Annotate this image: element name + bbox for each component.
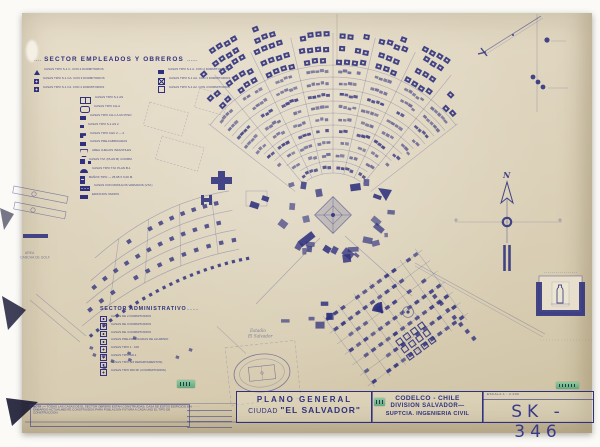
legend-row: CASAS TIPO S-1 A2. CON 4 DORMITORIOS — [158, 86, 291, 95]
legend-row-label: CASAS TIPO S-1 C. CON 2 DORMITORIOS — [44, 68, 104, 71]
legend-row: CASAS TIPO CH-A — [80, 105, 211, 114]
legend-row-label: CASAS TIPO S-1 CA. CON 3 DORMITORIOS — [43, 77, 105, 80]
legend-row: CASAS PRE-FABRICADAS — [80, 140, 211, 149]
legend-row: CASAS TIPO S-1 C. CON 2 DORMITORIOS — [34, 68, 166, 77]
wide-solid-icon — [80, 195, 88, 199]
scanned-drawing-page: AREACANCHA DE GOLFEstadioEl SalvadorN ..… — [0, 0, 600, 447]
legend-row-label: CASAS TIPO S-1 C2. CON 4 DORMITORIOS — [43, 86, 104, 89]
legend-row: CASAS TIPO 300 M² (4 DORMITORIOS) — [100, 369, 230, 377]
legend-administrativo: SECTOR ADMINISTRATIVO........ CASAS DE 2… — [100, 306, 230, 377]
legend-row-label: CASAS TIPO AD-1 — [111, 354, 136, 357]
legend-row-label: CASAS CON MODULOS VARIADOS (V.M.) — [94, 184, 153, 187]
legend-row: BAÑOS TIPO — 25,68 X 6,00 M. — [80, 175, 211, 184]
legend-row-label: CASAS TIPO CHC 2 — 2 — [90, 132, 124, 135]
nota-line-3: CONSTRUCCION. — [33, 412, 110, 415]
estadio-label: Estadio — [249, 328, 266, 333]
solid-square-icon — [80, 142, 86, 146]
square-plus-icon — [80, 159, 85, 164]
legend-row-label: CASAS TIPO S-1 AA. CON 3 DORMITORIOS — [169, 77, 230, 80]
small-solid-icon — [80, 125, 84, 128]
legend-row-label: CASAS TIPO CH-A — [94, 105, 120, 108]
legend-row-label: CASAS PRE-FABRICADAS — [90, 140, 127, 143]
north-arrow: N — [454, 170, 562, 271]
division-name: DIVISION SALVADOR— — [372, 403, 483, 409]
square-dot-icon — [34, 79, 39, 84]
green-sticker — [556, 382, 579, 389]
legend-row: CASAS TIPO CHC 2 — 2 — [80, 131, 211, 140]
admin-square-icon — [100, 346, 107, 353]
legend-row: CASAS TIPO S-1 CA. CON 3 DORMITORIOS — [34, 77, 166, 86]
legend-row-label: CASAS TIPO 1 : 100 — [111, 346, 139, 349]
central-plaza — [315, 197, 352, 234]
legend-row-label: CASAS DE 2 DORMITORIOS — [111, 315, 151, 318]
legend-row: CASAS TIPO 1 : 100 — [100, 346, 230, 354]
revision-row: ······ · ···· — [187, 406, 210, 408]
hospital-building — [201, 171, 269, 209]
legend-row: CASAS TIPO T.M. PLAN B-1 — [80, 166, 211, 175]
legend-row: CASAS CON MODULOS VARIADOS (V.M.) — [80, 184, 211, 193]
legend-row-label: CASAS TIPO S-1 AS — [95, 96, 123, 99]
legend-row: CASAS TIPO S-1 C2. CON 4 DORMITORIOS — [34, 86, 166, 95]
title-block-company: CODELCO - CHILE DIVISION SALVADOR— SUPTC… — [371, 391, 484, 423]
nota-block: NOTA :— TODAS LAS CASAS DE EL SECTOR OBR… — [30, 404, 190, 427]
scale-strip: ESCALA 1 : 2.000 — [483, 392, 593, 400]
triangle-icon — [34, 70, 40, 75]
legend-administrativo-title: SECTOR ADMINISTRATIVO........ — [100, 306, 230, 312]
admin-square-icon — [100, 316, 107, 323]
legend-row-label: CASAS TIPO S-1 A. CON 2 DORMITORIOS — [168, 68, 227, 71]
legend-empleados-obreros: .... SECTOR EMPLEADOS Y OBREROS ...... C… — [34, 56, 198, 63]
revision-row: ······ · ···· — [187, 411, 210, 413]
legend-row: CASAS TIPO S-1 AS — [80, 96, 211, 105]
plan-title: PLANO GENERAL — [237, 395, 372, 404]
drawing-number: SK - 346 — [483, 402, 593, 442]
solid-square-icon — [80, 116, 86, 120]
department-name: SUPTCIA. INGENIERIA CIVIL — [372, 411, 483, 417]
legend-row: CASAS DE 4 DORMITORIOS — [100, 330, 230, 338]
svg-text:El Salvador: El Salvador — [247, 334, 273, 339]
legend-empleados-rows: CASAS TIPO S-1 ASCASAS TIPO CH-ACASAS TI… — [80, 96, 211, 202]
legend-row-label: CASAS TIPO S-1 AS 2 — [88, 123, 119, 126]
legend-row: CASAS TIPO S-1 AS 2 — [80, 122, 211, 131]
outline-square-icon — [158, 86, 165, 93]
survey-dots — [478, 16, 568, 89]
golf-area-label: AREA — [25, 251, 35, 255]
legend-row-label: CASAS TIPO S-1 A2. CON 4 DORMITORIOS — [169, 86, 230, 89]
legend-row-label: CASAS TIPO T.M. PLAN B-1 — [92, 167, 131, 170]
title-block-name: PLANO GENERAL CIUDAD "EL SALVADOR" — [236, 391, 373, 423]
emblem-box — [539, 273, 592, 341]
legend-row-label: CASAS DE 4 DORMITORIOS — [111, 331, 151, 334]
step-block-icon — [80, 133, 86, 138]
title-block-number: ESCALA 1 : 2.000 SK - 346 — [482, 391, 594, 423]
legend-row: CASAS PRE-FABRICADAS DE ALUMINIO — [100, 338, 230, 346]
green-sticker — [177, 380, 195, 388]
legend-row: CASAS DE 3 DORMITORIOS — [100, 323, 230, 331]
legend-row-label: AREA JUEGOS INFANTILES — [92, 149, 131, 152]
legend-row-label: CASAS TIPO 300 M² (4 DORMITORIOS) — [111, 369, 166, 372]
access-road — [256, 236, 545, 337]
legend-row: CASAS TIPO CH-1 A UN PISO — [80, 114, 211, 123]
trapezoid-icon — [80, 149, 88, 157]
dotted-wide-icon — [80, 186, 90, 191]
admin-square-icon — [100, 331, 107, 338]
revision-table: ······ · ·········· · ·········· · ·····… — [187, 406, 232, 428]
legend-row-label: CASAS T.M. (PLAN B) 4 DORM. — [89, 158, 132, 161]
solid-square-icon — [158, 70, 164, 74]
legend-row-label: BAÑOS TIPO — 25,68 X 6,00 M. — [89, 176, 133, 179]
svg-text:CANCHA DE GOLF: CANCHA DE GOLF — [20, 256, 50, 260]
admin-square-icon — [100, 369, 107, 376]
scale-label: ESCALA 1 : 2.000 — [487, 393, 519, 396]
legend-row: CASAS TIPO (24 DEPARTAMENTOS) — [100, 361, 230, 369]
company-name: CODELCO - CHILE — [372, 395, 483, 402]
legend-row: CASAS DE 2 DORMITORIOS — [100, 315, 230, 323]
legend-row-label: CASAS TIPO (24 DEPARTAMENTOS) — [111, 361, 162, 364]
arch-icon — [80, 169, 88, 173]
admin-square-icon — [100, 354, 107, 361]
plan-city: CIUDAD "EL SALVADOR" — [237, 405, 372, 415]
legend-row: CASAS TIPO AD-1 — [100, 353, 230, 361]
oval-icon — [80, 106, 90, 113]
legend-row: CASAS TIPO S-1 A. CON 2 DORMITORIOS — [158, 68, 291, 77]
hatched-square-icon — [158, 78, 165, 85]
legend-row-label: CASAS PRE-FABRICADAS DE ALUMINIO — [111, 338, 168, 341]
legend-row-label: CASAS DE 3 DORMITORIOS — [111, 323, 151, 326]
lower-grid-sector — [319, 246, 471, 390]
fan-sector — [200, 26, 458, 192]
legend-empleados-title: .... SECTOR EMPLEADOS Y OBREROS ...... — [34, 56, 198, 63]
tall-block-icon — [80, 176, 85, 184]
square-dot-icon — [34, 87, 39, 92]
legend-row: AREA JUEGOS INFANTILES — [80, 149, 211, 158]
legend-row: CASAS TIPO S-1 AA. CON 3 DORMITORIOS — [158, 77, 291, 86]
legend-row: CASAS T.M. (PLAN B) 4 DORM. — [80, 158, 211, 167]
admin-square-icon — [100, 339, 107, 346]
legend-row-label: EDIFICIOS VARIOS — [92, 193, 119, 196]
admin-square-icon — [100, 362, 107, 369]
revision-row: ······ · ···· — [187, 417, 210, 419]
pair-square-icon — [80, 97, 91, 104]
golf-strips: AREACANCHA DE GOLF — [13, 186, 68, 260]
legend-administrativo-rows: CASAS DE 2 DORMITORIOSCASAS DE 3 DORMITO… — [100, 315, 230, 377]
corner-marks — [0, 208, 86, 426]
north-label: N — [502, 170, 511, 180]
legend-row-label: CASAS TIPO CH-1 A UN PISO — [90, 114, 131, 117]
legend-row: EDIFICIOS VARIOS — [80, 193, 211, 202]
mini-fan-rows — [372, 302, 383, 313]
admin-square-icon — [100, 323, 107, 330]
green-sticker — [374, 398, 385, 406]
revision-row: ······ · ···· — [187, 422, 210, 424]
